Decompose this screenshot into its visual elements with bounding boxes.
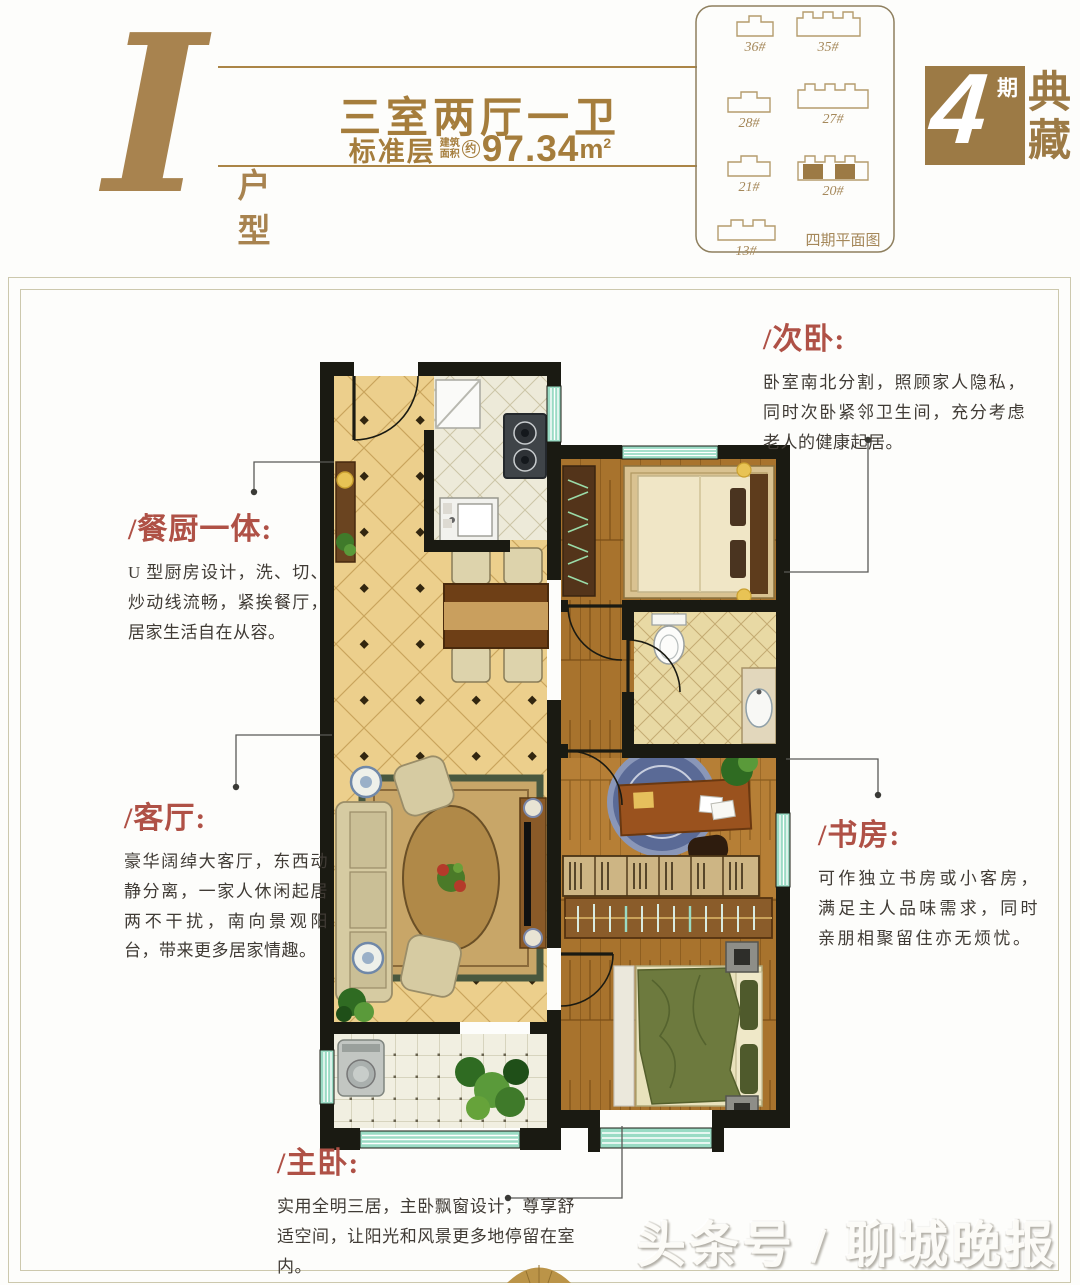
watermark: 头条号 / 聊城晚报 xyxy=(637,1206,1058,1277)
tv xyxy=(524,822,531,926)
siteplan-border xyxy=(696,6,894,252)
siteplan-caption: 四期平面图 xyxy=(805,232,880,249)
building-21 xyxy=(728,156,770,176)
annotation-master-bedroom: /主卧: 实用全明三居，主卧飘窗设计，尊享舒适空间，让阳光和风景更多地停留在室内… xyxy=(277,1138,575,1281)
phase-logo-wordmark: 典 藏 xyxy=(1028,70,1071,166)
washbasin xyxy=(746,689,772,727)
building-27 xyxy=(798,84,868,108)
building-35 xyxy=(797,12,860,36)
headboard xyxy=(750,474,768,594)
building-36 xyxy=(737,16,773,36)
plan-type-label: 户型 xyxy=(226,168,274,258)
toilet xyxy=(654,626,684,664)
phase-logo: 4 期 xyxy=(925,66,1025,165)
annotation-title: /餐厨一体: xyxy=(128,504,328,548)
building-27-label: 27# xyxy=(823,112,845,127)
kitchen-window xyxy=(547,386,561,442)
building-28-label: 28# xyxy=(739,116,761,131)
area-note-top: 建筑 xyxy=(440,138,460,150)
building-20-highlight-left xyxy=(803,164,823,179)
floor-label: 标准层 xyxy=(349,130,436,169)
area-spec: 标准层 建筑 面积 约 97.34 m2 xyxy=(250,128,710,170)
master-bay-window xyxy=(600,1128,712,1148)
balcony-side-window xyxy=(320,1050,334,1104)
floorplan xyxy=(310,355,798,1167)
area-value: 97.34 xyxy=(482,128,580,170)
building-35-label: 35# xyxy=(817,40,840,55)
phase-logo-phase: 期 xyxy=(997,72,1018,102)
building-20-label: 20# xyxy=(823,184,845,199)
annotation-title: /主卧: xyxy=(277,1138,575,1182)
annotation-body: 豪华阔绰大客厅，东西动静分离，一家人休闲起居两不干扰，南向景观阳台，带来更多居家… xyxy=(124,847,328,966)
phase-logo-number: 4 xyxy=(926,52,992,167)
annotation-body: 可作独立书房或小客房，满足主人品味需求，同时亲朋相聚留住亦无烦忧。 xyxy=(818,864,1040,953)
building-13-label: 13# xyxy=(736,244,758,258)
plan-letter: I xyxy=(104,6,206,224)
bedside-rug xyxy=(614,966,634,1106)
building-28 xyxy=(728,92,770,112)
annotation-title: /客厅: xyxy=(124,793,328,837)
wardrobe xyxy=(565,898,772,938)
area-approx-badge: 约 xyxy=(462,140,480,158)
building-13 xyxy=(718,220,775,240)
area-unit: m2 xyxy=(579,134,611,165)
annotation-body: 卧室南北分割，照顾家人隐私，同时次卧紧邻卫生间，充分考虑老人的健康起居。 xyxy=(763,368,1025,457)
blanket xyxy=(638,968,742,1104)
area-note: 建筑 面积 xyxy=(440,138,460,161)
tv-console xyxy=(520,798,546,948)
annotation-kitchen-dining: /餐厨一体: U 型厨房设计，洗、切、炒动线流畅，紧挨餐厅，居家生活自在从容。 xyxy=(128,504,328,647)
logo-char-bottom: 藏 xyxy=(1028,118,1071,166)
annotation-body: 实用全明三居，主卧飘窗设计，尊享舒适空间，让阳光和风景更多地停留在室内。 xyxy=(277,1192,575,1281)
annotation-title: /书房: xyxy=(818,810,1040,854)
master-bedroom-furniture xyxy=(614,942,762,1126)
floorplan-poster: I 户型 三室两厅一卫 标准层 建筑 面积 约 97.34 m2 36# 35#… xyxy=(0,0,1080,1285)
building-36-label: 36# xyxy=(744,40,767,55)
entry-cabinet xyxy=(336,462,356,562)
plant-bay xyxy=(563,466,595,596)
annotation-study: /书房: 可作独立书房或小客房，满足主人品味需求，同时亲朋相聚留住亦无烦忧。 xyxy=(818,810,1040,953)
siteplan-map: 36# 35# 28# 27# 21# 20# 13# 四期平面图 xyxy=(693,2,898,258)
building-20-highlight-right xyxy=(835,164,855,179)
logo-char-top: 典 xyxy=(1028,70,1071,118)
second-bedroom-furniture xyxy=(563,463,774,603)
armchair xyxy=(399,933,463,999)
header-rule-top xyxy=(218,66,697,68)
building-21-label: 21# xyxy=(739,180,761,195)
annotation-living-room: /客厅: 豪华阔绰大客厅，东西动静分离，一家人休闲起居两不干扰，南向景观阳台，带… xyxy=(124,793,328,966)
annotation-second-bedroom: /次卧: 卧室南北分割，照顾家人隐私，同时次卧紧邻卫生间，充分考虑老人的健康起居… xyxy=(763,314,1025,457)
study-window xyxy=(776,813,790,887)
annotation-body: U 型厨房设计，洗、切、炒动线流畅，紧挨餐厅，居家生活自在从容。 xyxy=(128,558,328,647)
second-bedroom-window xyxy=(622,446,718,459)
area-note-bottom: 面积 xyxy=(440,149,460,161)
annotation-title: /次卧: xyxy=(763,314,1025,358)
